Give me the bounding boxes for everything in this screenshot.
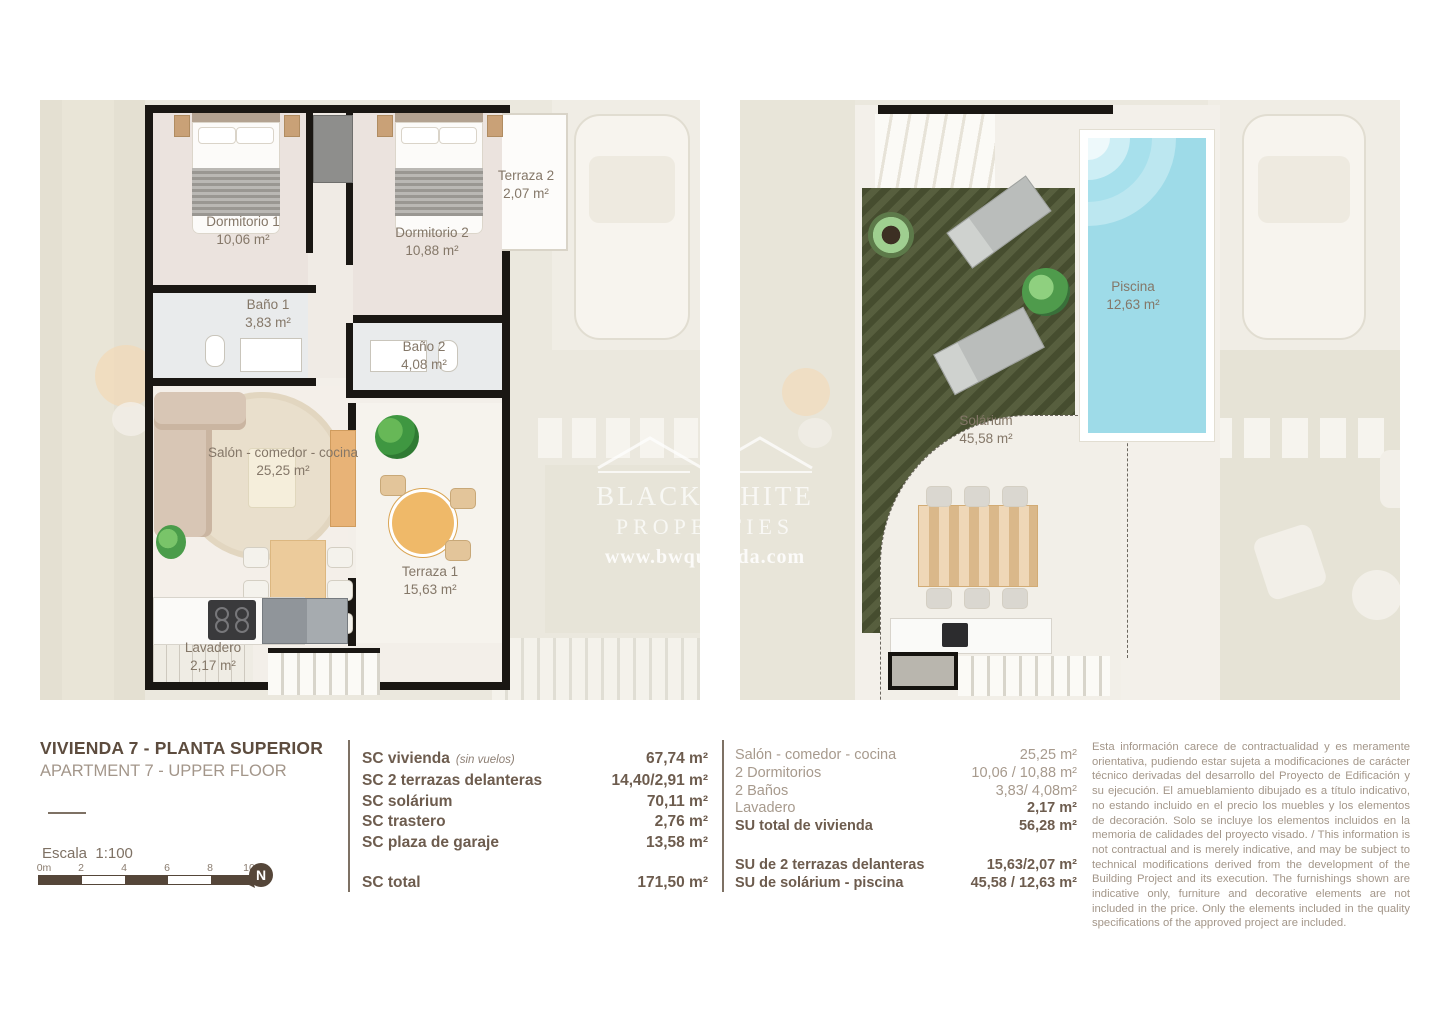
scale-bar: 0m 2 4 6 8 10 (38, 862, 254, 888)
scale-tick: 8 (207, 862, 213, 874)
stove-icon (942, 623, 968, 647)
scale-tick: 0m (37, 862, 52, 874)
plant-icon (156, 525, 186, 559)
room-area: 45,58 m² (959, 430, 1012, 448)
chair-icon (926, 486, 952, 507)
divider-vertical (722, 740, 724, 892)
pillow-icon (401, 127, 439, 144)
chair-icon (327, 547, 353, 568)
car-windshield (589, 156, 674, 223)
stairs-lower (958, 656, 1110, 696)
table-row: SC solárium 70,11 m² (362, 792, 708, 813)
table-row: SU de solárium - piscina 45,58 / 12,63 m… (735, 875, 1077, 893)
pergola-slat (538, 418, 562, 458)
wall (878, 105, 1113, 114)
room-label-bano-2: Baño 2 4,08 m² (401, 338, 447, 374)
table-row: SC plaza de garaje 13,58 m² (362, 833, 708, 854)
plant-icon (1022, 268, 1070, 316)
row-value: 3,83/ 4,08m² (996, 783, 1077, 801)
room-area: 4,08 m² (401, 356, 447, 374)
bed-icon (395, 113, 483, 234)
neighbor-car-icon (574, 114, 690, 340)
row-value: 14,40/2,91 m² (611, 771, 708, 792)
chair-icon (1002, 588, 1028, 609)
row-label: SC total (362, 873, 421, 894)
floorplan-upper-floor: Dormitorio 1 10,06 m² Dormitorio 2 10,88… (40, 100, 700, 700)
room-area: 12,63 m² (1106, 296, 1159, 314)
row-value: 25,25 m² (1020, 747, 1077, 765)
row-label: SC solárium (362, 792, 452, 813)
car-windshield (1258, 156, 1349, 223)
bed-blanket (395, 168, 483, 216)
row-label: SU de solárium - piscina (735, 875, 903, 893)
room-name: Solárium (959, 412, 1012, 430)
neighbor-stairs (492, 638, 700, 700)
scale-label: Escala 1:100 (42, 845, 133, 862)
legal-disclaimer: Esta información carece de contractualid… (1092, 740, 1410, 931)
outdoor-kitchen-counter (890, 618, 1052, 654)
bed-headboard (192, 113, 280, 122)
sofa-chaise (154, 392, 246, 430)
pergola-slat (640, 418, 664, 458)
room-area: 2,17 m² (185, 657, 241, 675)
table-row: SC vivienda(sin vuelos) 67,74 m² (362, 749, 708, 771)
vanity-icon (240, 338, 302, 372)
pergola-slat (674, 418, 698, 458)
nightstand-icon (284, 115, 300, 137)
wall (145, 378, 316, 386)
room-label-dormitorio-2: Dormitorio 2 10,88 m² (395, 224, 469, 260)
room-area: 15,63 m² (402, 581, 458, 599)
chair-icon (450, 488, 476, 509)
row-value: 171,50 m² (637, 873, 708, 894)
row-value: 13,58 m² (646, 833, 708, 854)
room-name: Lavadero (185, 639, 241, 657)
neighbor-furniture (1352, 570, 1400, 620)
wall (353, 315, 510, 323)
scale-segment (168, 876, 211, 884)
wall (346, 323, 353, 398)
table-row: Salón - comedor - cocina 25,25 m² (735, 747, 1077, 765)
room-area: 25,25 m² (208, 462, 358, 480)
chair-icon (1002, 486, 1028, 507)
room-name: Terraza 2 (498, 167, 554, 185)
pergola-slat (1282, 418, 1308, 458)
plan-title: VIVIENDA 7 - PLANTA SUPERIOR (40, 738, 323, 759)
room-name: Baño 2 (401, 338, 447, 356)
potted-plant-icon (868, 212, 914, 258)
table-row: 2 Baños 3,83/ 4,08m² (735, 783, 1077, 801)
sc-areas-table: SC vivienda(sin vuelos) 67,74 m² SC 2 te… (362, 749, 708, 894)
nightstand-icon (487, 115, 503, 137)
row-note: (sin vuelos) (456, 754, 515, 766)
row-label: SU total de vivienda (735, 818, 873, 836)
neighbor-car-icon (1242, 114, 1366, 340)
neighbor-table-icon (782, 368, 830, 416)
north-compass-icon: N (245, 861, 275, 891)
scale-tick: 2 (78, 862, 84, 874)
row-label: Lavadero (735, 800, 795, 818)
room-label-terraza-2: Terraza 2 2,07 m² (498, 167, 554, 203)
stove-icon (208, 600, 256, 640)
table-row: 2 Dormitorios 10,06 / 10,88 m² (735, 765, 1077, 783)
row-value: 15,63/2,07 m² (987, 857, 1077, 875)
kitchen-cabinet-gray (262, 598, 348, 644)
row-label: 2 Baños (735, 783, 788, 801)
row-label: 2 Dormitorios (735, 765, 821, 783)
neighbor-chair-icon (798, 418, 832, 448)
nightstand-icon (174, 115, 190, 137)
room-name: Piscina (1106, 278, 1159, 296)
row-value: 56,28 m² (1019, 818, 1077, 836)
su-areas-table: Salón - comedor - cocina 25,25 m² 2 Dorm… (735, 747, 1077, 893)
row-value: 45,58 / 12,63 m² (971, 875, 1077, 893)
closet-icon (313, 115, 353, 183)
room-area: 10,88 m² (395, 242, 469, 260)
row-label: SU de 2 terrazas delanteras (735, 857, 924, 875)
chair-icon (926, 588, 952, 609)
neighbor-pergola-row (538, 418, 700, 458)
room-label-lavadero: Lavadero 2,17 m² (185, 639, 241, 675)
chair-icon (964, 486, 990, 507)
row-value: 10,06 / 10,88 m² (971, 765, 1077, 783)
svg-text:N: N (256, 867, 266, 883)
toilet-icon (205, 335, 225, 367)
room-area: 10,06 m² (206, 231, 280, 249)
room-name: Dormitorio 2 (395, 224, 469, 242)
room-name: Dormitorio 1 (206, 213, 280, 231)
row-value: 67,74 m² (646, 749, 708, 771)
scale-segment (125, 876, 168, 884)
row-label: SC 2 terrazas delanteras (362, 771, 542, 792)
room-label-solarium: Solárium 45,58 m² (959, 412, 1012, 448)
room-name: Salón - comedor - cocina (208, 444, 358, 462)
pergola-slat (1320, 418, 1346, 458)
pergola-slat (572, 418, 596, 458)
wall (353, 390, 510, 398)
scale-tick: 6 (164, 862, 170, 874)
cabinet-dark-icon (888, 652, 958, 690)
pillow-icon (198, 127, 236, 144)
bed-mattress (395, 122, 483, 234)
solarium-dashed-vertical (1127, 418, 1128, 658)
divider-vertical (348, 740, 350, 892)
room-name: Baño 1 (245, 296, 291, 314)
dining-table-icon (918, 505, 1038, 587)
chair-icon (445, 540, 471, 561)
room-label-dormitorio-1: Dormitorio 1 10,06 m² (206, 213, 280, 249)
scale-segment (39, 876, 82, 884)
room-area: 3,83 m² (245, 314, 291, 332)
table-row: SU total de vivienda 56,28 m² (735, 818, 1077, 836)
pergola-slat (1358, 418, 1384, 458)
neighbor-terrace (545, 465, 700, 633)
table-row: SC trastero 2,76 m² (362, 812, 708, 833)
row-label: SC trastero (362, 812, 446, 833)
floorplan-solarium: Piscina 12,63 m² Solárium 45,58 m² (740, 100, 1400, 700)
row-label: SC plaza de garaje (362, 833, 499, 854)
stairs-lower (268, 648, 380, 695)
bed-headboard (395, 113, 483, 122)
pergola-slat (606, 418, 630, 458)
chair-icon (380, 475, 406, 496)
table-total-row: SC total 171,50 m² (362, 873, 708, 894)
plant-icon (375, 415, 419, 459)
chair-icon (964, 588, 990, 609)
nightstand-icon (377, 115, 393, 137)
row-label: Salón - comedor - cocina (735, 747, 896, 765)
pergola-slat (1244, 418, 1270, 458)
room-label-terraza-1: Terraza 1 15,63 m² (402, 563, 458, 599)
title-block: VIVIENDA 7 - PLANTA SUPERIOR APARTMENT 7… (40, 738, 323, 781)
chair-icon (243, 547, 269, 568)
scale-bar-segments (38, 875, 255, 885)
room-area: 2,07 m² (498, 185, 554, 203)
table-row: SU de 2 terrazas delanteras 15,63/2,07 m… (735, 857, 1077, 875)
table-row: SC 2 terrazas delanteras 14,40/2,91 m² (362, 771, 708, 792)
wall (145, 285, 316, 293)
neighbor-furniture (1380, 450, 1400, 508)
table-row: Lavadero 2,17 m² (735, 800, 1077, 818)
row-label: SC vivienda(sin vuelos) (362, 749, 515, 771)
scale-tick: 4 (121, 862, 127, 874)
divider-dash (48, 812, 86, 814)
room-label-piscina: Piscina 12,63 m² (1106, 278, 1159, 314)
wall (306, 113, 313, 253)
room-label-bano-1: Baño 1 3,83 m² (245, 296, 291, 332)
pillow-icon (439, 127, 477, 144)
scale-segment (82, 876, 125, 884)
bed-blanket (192, 168, 280, 216)
plan-subtitle: APARTMENT 7 - UPPER FLOOR (40, 762, 323, 781)
room-label-salon: Salón - comedor - cocina 25,25 m² (208, 444, 358, 480)
row-value: 2,17 m² (1027, 800, 1077, 818)
row-value: 70,11 m² (647, 792, 708, 813)
room-name: Terraza 1 (402, 563, 458, 581)
row-value: 2,76 m² (655, 812, 708, 833)
pillow-icon (236, 127, 274, 144)
